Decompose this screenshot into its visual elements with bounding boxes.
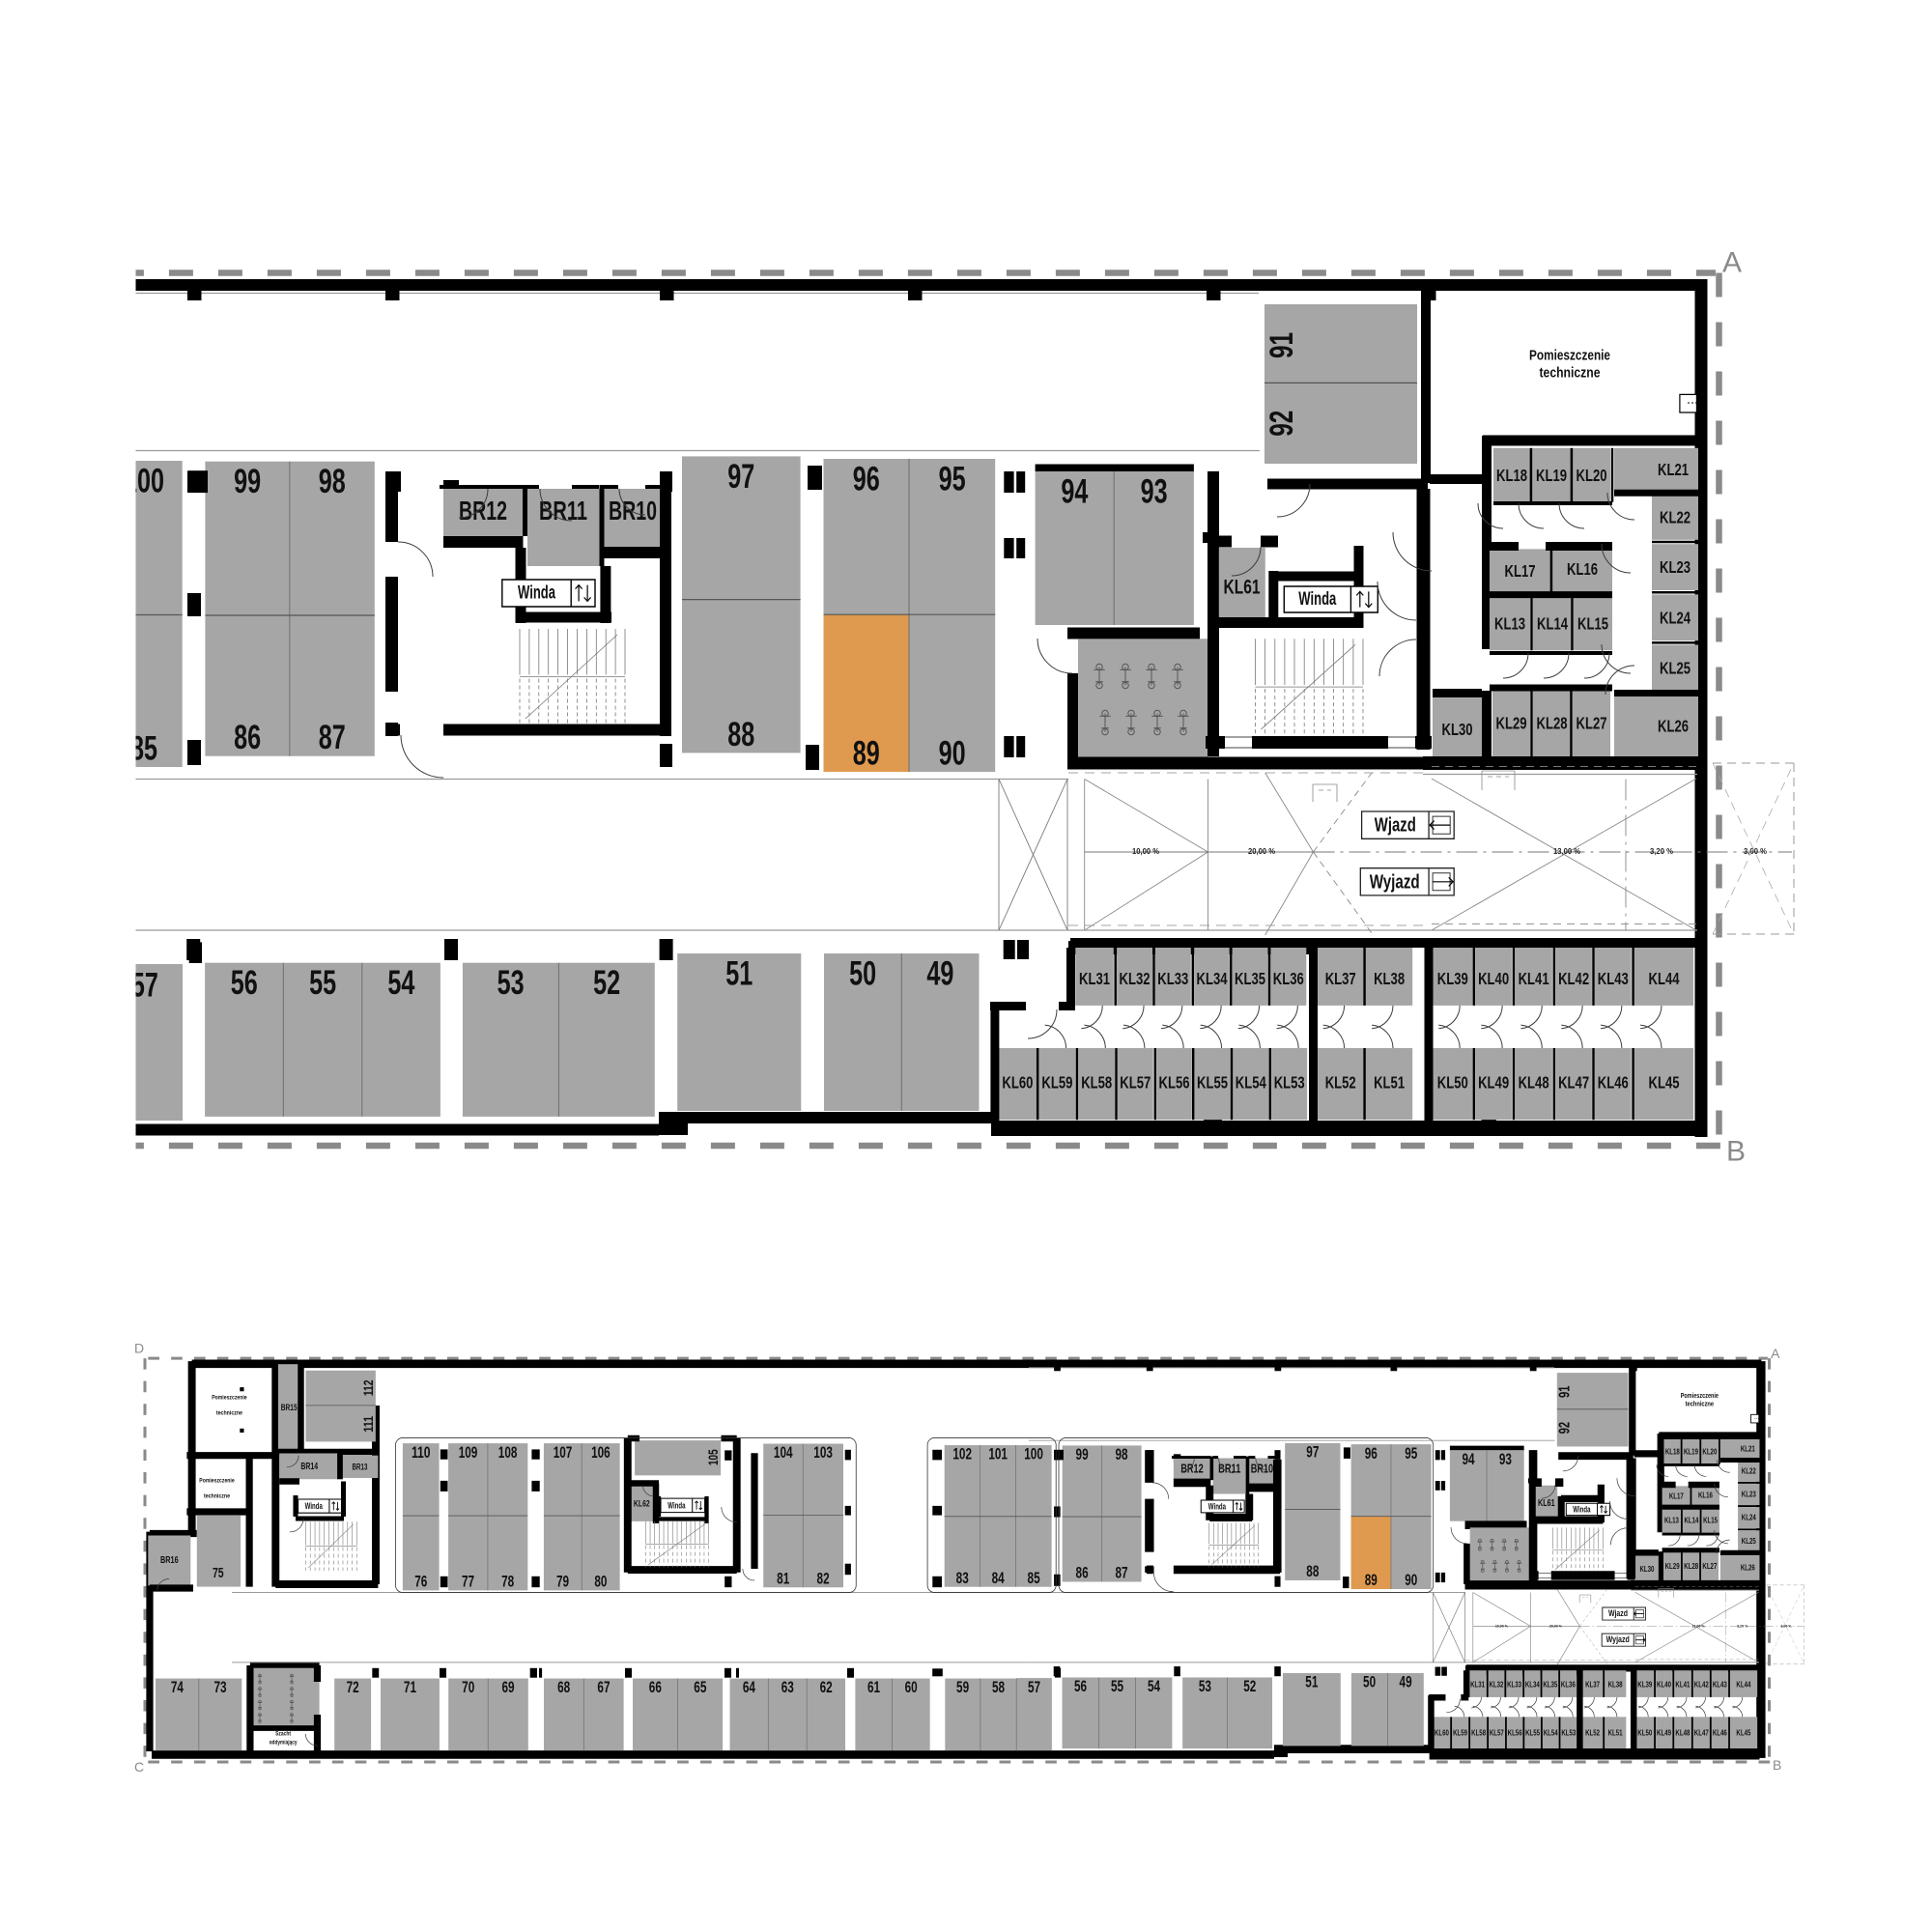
svg-text:83: 83	[956, 1570, 969, 1587]
svg-text:80: 80	[594, 1574, 607, 1591]
svg-text:oddymiający: oddymiający	[270, 1741, 298, 1747]
svg-text:Wjazd: Wjazd	[1375, 814, 1416, 837]
svg-text:100: 100	[1024, 1446, 1043, 1463]
svg-text:56: 56	[1074, 1678, 1087, 1695]
svg-text:107: 107	[554, 1444, 573, 1462]
svg-text:KL62: KL62	[634, 1498, 650, 1508]
svg-text:KL31: KL31	[1470, 1681, 1485, 1690]
svg-text:techniczne: techniczne	[1540, 365, 1601, 382]
svg-text:89: 89	[853, 735, 880, 773]
svg-text:KL27: KL27	[1702, 1562, 1717, 1571]
svg-text:KL56: KL56	[1159, 1073, 1190, 1093]
svg-text:techniczne: techniczne	[204, 1492, 230, 1499]
svg-text:62: 62	[820, 1679, 833, 1696]
svg-text:20,00 %: 20,00 %	[1549, 1623, 1563, 1628]
svg-text:101: 101	[988, 1446, 1008, 1463]
svg-text:49: 49	[1400, 1674, 1412, 1691]
svg-text:KL53: KL53	[1274, 1073, 1305, 1093]
svg-text:105: 105	[705, 1449, 721, 1465]
svg-text:111: 111	[360, 1416, 376, 1433]
svg-text:81: 81	[777, 1571, 789, 1588]
svg-text:53: 53	[1199, 1678, 1211, 1695]
svg-text:Wyjazd: Wyjazd	[1370, 870, 1420, 893]
svg-text:KL61: KL61	[1538, 1498, 1555, 1509]
svg-text:KL40: KL40	[1657, 1681, 1671, 1690]
svg-text:KL49: KL49	[1657, 1728, 1671, 1737]
svg-text:KL59: KL59	[1453, 1728, 1467, 1737]
svg-text:57: 57	[1028, 1679, 1040, 1696]
svg-text:88: 88	[727, 716, 754, 753]
svg-text:KL46: KL46	[1598, 1073, 1629, 1093]
svg-text:KL53: KL53	[1561, 1728, 1576, 1737]
svg-text:KL27: KL27	[1577, 713, 1607, 732]
svg-text:74: 74	[171, 1679, 184, 1696]
svg-text:KL19: KL19	[1536, 466, 1567, 485]
svg-text:KL44: KL44	[1649, 969, 1680, 988]
svg-text:KL60: KL60	[1435, 1728, 1449, 1737]
svg-text:Pomieszczenie: Pomieszczenie	[212, 1394, 247, 1401]
svg-text:Wyjazd: Wyjazd	[1606, 1634, 1630, 1645]
svg-text:KL45: KL45	[1736, 1728, 1750, 1737]
svg-text:69: 69	[501, 1679, 514, 1696]
svg-text:10,00 %: 10,00 %	[1495, 1623, 1509, 1628]
svg-text:KL24: KL24	[1742, 1514, 1756, 1522]
svg-text:BR12: BR12	[459, 496, 507, 526]
svg-text:KL17: KL17	[1505, 561, 1536, 581]
svg-text:108: 108	[498, 1444, 518, 1462]
svg-text:KL19: KL19	[1684, 1447, 1698, 1456]
svg-text:55: 55	[1111, 1678, 1123, 1695]
svg-text:BR10: BR10	[1251, 1461, 1273, 1475]
svg-text:KL60: KL60	[1002, 1073, 1033, 1093]
svg-text:112: 112	[360, 1379, 376, 1396]
svg-text:63: 63	[781, 1679, 794, 1696]
svg-text:95: 95	[1405, 1445, 1417, 1463]
svg-text:D: D	[134, 1340, 144, 1355]
svg-text:92: 92	[1264, 411, 1300, 437]
svg-text:KL13: KL13	[1664, 1516, 1679, 1524]
svg-text:51: 51	[1305, 1674, 1318, 1691]
svg-text:KL30: KL30	[1442, 720, 1473, 739]
svg-text:KL24: KL24	[1660, 608, 1690, 627]
svg-text:110: 110	[412, 1444, 431, 1462]
svg-text:99: 99	[1076, 1446, 1089, 1463]
svg-text:KL47: KL47	[1694, 1728, 1709, 1737]
svg-text:KL33: KL33	[1507, 1681, 1521, 1690]
svg-text:C: C	[134, 1759, 144, 1775]
svg-text:KL17: KL17	[1669, 1492, 1684, 1500]
svg-text:BR11: BR11	[539, 496, 587, 526]
svg-text:64: 64	[743, 1679, 755, 1696]
svg-text:50: 50	[1363, 1674, 1376, 1691]
svg-text:55: 55	[309, 964, 336, 1002]
svg-text:Pomieszczenie: Pomieszczenie	[1529, 348, 1610, 364]
svg-text:KL50: KL50	[1637, 1728, 1652, 1737]
svg-text:78: 78	[501, 1574, 514, 1591]
svg-text:95: 95	[939, 461, 966, 498]
svg-text:88: 88	[1306, 1563, 1319, 1580]
svg-text:KL43: KL43	[1598, 969, 1629, 988]
svg-text:86: 86	[234, 719, 261, 756]
svg-text:97: 97	[1306, 1444, 1319, 1462]
svg-text:72: 72	[347, 1679, 359, 1696]
svg-text:KL49: KL49	[1478, 1073, 1509, 1093]
svg-text:KL20: KL20	[1702, 1447, 1717, 1456]
svg-text:KL21: KL21	[1658, 460, 1689, 479]
svg-text:Winda: Winda	[1208, 1501, 1226, 1511]
svg-text:50: 50	[849, 955, 876, 993]
svg-text:92: 92	[1557, 1422, 1574, 1435]
svg-text:KL22: KL22	[1660, 508, 1690, 527]
svg-text:KL45: KL45	[1649, 1073, 1680, 1093]
svg-text:B: B	[1726, 1136, 1746, 1168]
svg-text:KL14: KL14	[1684, 1516, 1698, 1524]
svg-text:KL38: KL38	[1374, 969, 1405, 988]
svg-text:KL35: KL35	[1543, 1681, 1557, 1690]
svg-text:KL18: KL18	[1496, 466, 1527, 485]
svg-text:79: 79	[556, 1574, 569, 1591]
svg-text:Winda: Winda	[305, 1501, 323, 1511]
svg-text:Pomieszczenie: Pomieszczenie	[199, 1478, 235, 1485]
svg-text:KL54: KL54	[1236, 1073, 1266, 1093]
svg-text:84: 84	[992, 1570, 1005, 1587]
svg-text:Winda: Winda	[518, 583, 555, 604]
svg-text:99: 99	[234, 463, 261, 500]
svg-text:85: 85	[1028, 1570, 1040, 1587]
svg-text:54: 54	[1148, 1678, 1160, 1695]
svg-text:51: 51	[725, 955, 753, 993]
svg-text:KL29: KL29	[1665, 1562, 1680, 1571]
svg-text:109: 109	[459, 1444, 478, 1462]
svg-text:KL15: KL15	[1577, 613, 1608, 633]
svg-text:KL55: KL55	[1197, 1073, 1228, 1093]
svg-text:KL55: KL55	[1525, 1728, 1540, 1737]
svg-text:87: 87	[1116, 1565, 1128, 1582]
svg-text:KL34: KL34	[1197, 969, 1228, 988]
svg-text:KL52: KL52	[1585, 1728, 1600, 1737]
svg-text:52: 52	[1243, 1678, 1256, 1695]
svg-text:76: 76	[414, 1574, 427, 1591]
svg-text:Winda: Winda	[1573, 1504, 1590, 1514]
svg-text:KL39: KL39	[1637, 1681, 1652, 1690]
svg-text:KL46: KL46	[1713, 1728, 1727, 1737]
svg-text:KL57: KL57	[1490, 1728, 1504, 1737]
svg-text:BR16: BR16	[160, 1555, 179, 1566]
svg-text:49: 49	[926, 955, 953, 993]
svg-text:BR15: BR15	[281, 1403, 298, 1412]
svg-text:103: 103	[813, 1444, 833, 1462]
svg-text:66: 66	[649, 1679, 662, 1696]
svg-text:53: 53	[497, 964, 525, 1002]
svg-text:Szacht: Szacht	[275, 1732, 291, 1738]
svg-text:KL44: KL44	[1736, 1681, 1750, 1690]
svg-text:10,00 %: 10,00 %	[1132, 846, 1159, 856]
svg-text:96: 96	[1365, 1445, 1378, 1463]
svg-text:KL52: KL52	[1325, 1073, 1356, 1093]
svg-text:A: A	[1722, 247, 1742, 279]
svg-text:86: 86	[1076, 1565, 1089, 1582]
svg-text:3,00 %: 3,00 %	[1780, 1623, 1792, 1628]
svg-text:104: 104	[774, 1444, 793, 1462]
svg-text:KL38: KL38	[1608, 1681, 1623, 1690]
svg-text:A: A	[1771, 1346, 1780, 1361]
svg-text:102: 102	[952, 1446, 972, 1463]
svg-text:KL29: KL29	[1496, 713, 1527, 732]
svg-text:Winda: Winda	[1298, 589, 1336, 610]
svg-text:KL58: KL58	[1081, 1073, 1112, 1093]
svg-text:13,00 %: 13,00 %	[1553, 846, 1580, 856]
svg-text:82: 82	[817, 1571, 830, 1588]
svg-text:59: 59	[956, 1679, 969, 1696]
svg-text:77: 77	[462, 1574, 474, 1591]
svg-text:KL41: KL41	[1519, 969, 1549, 988]
svg-text:54: 54	[387, 964, 414, 1002]
svg-text:KL22: KL22	[1742, 1467, 1756, 1476]
svg-text:89: 89	[1365, 1572, 1378, 1589]
svg-text:91: 91	[1557, 1385, 1574, 1398]
svg-text:KL35: KL35	[1235, 969, 1265, 988]
svg-text:KL26: KL26	[1658, 717, 1689, 736]
svg-text:56: 56	[231, 964, 258, 1002]
svg-text:BR11: BR11	[1218, 1461, 1240, 1475]
svg-text:13,00 %: 13,00 %	[1691, 1623, 1705, 1628]
svg-text:Wjazd: Wjazd	[1608, 1608, 1628, 1619]
svg-text:52: 52	[593, 964, 620, 1002]
svg-text:KL20: KL20	[1577, 466, 1607, 485]
svg-text:58: 58	[992, 1679, 1005, 1696]
svg-text:Winda: Winda	[668, 1500, 685, 1510]
svg-text:KL61: KL61	[1224, 577, 1261, 599]
svg-text:KL36: KL36	[1561, 1681, 1576, 1690]
svg-text:68: 68	[557, 1679, 570, 1696]
svg-text:KL23: KL23	[1742, 1491, 1756, 1499]
svg-text:60: 60	[905, 1679, 918, 1696]
svg-text:KL15: KL15	[1703, 1516, 1718, 1524]
svg-text:90: 90	[1405, 1572, 1417, 1589]
svg-text:61: 61	[867, 1679, 880, 1696]
svg-text:KL56: KL56	[1508, 1728, 1522, 1737]
svg-text:94: 94	[1462, 1451, 1474, 1468]
svg-text:KL25: KL25	[1742, 1537, 1756, 1546]
svg-text:techniczne: techniczne	[1686, 1401, 1715, 1407]
svg-text:KL39: KL39	[1437, 969, 1468, 988]
svg-text:KL54: KL54	[1544, 1728, 1558, 1737]
svg-text:KL31: KL31	[1079, 969, 1110, 988]
svg-text:KL26: KL26	[1741, 1564, 1755, 1573]
svg-text:KL32: KL32	[1490, 1681, 1504, 1690]
svg-text:106: 106	[591, 1444, 611, 1462]
svg-text:90: 90	[939, 735, 966, 773]
svg-text:71: 71	[404, 1679, 416, 1696]
svg-text:73: 73	[213, 1679, 226, 1696]
svg-text:96: 96	[853, 461, 880, 498]
svg-text:93: 93	[1499, 1451, 1512, 1468]
svg-text:BR14: BR14	[300, 1462, 318, 1472]
svg-text:BR13: BR13	[353, 1462, 368, 1471]
svg-text:75: 75	[213, 1566, 224, 1581]
svg-text:KL25: KL25	[1660, 659, 1690, 678]
svg-text:KL37: KL37	[1325, 969, 1356, 988]
svg-text:KL42: KL42	[1694, 1681, 1709, 1690]
svg-text:KL28: KL28	[1684, 1562, 1698, 1571]
svg-text:91: 91	[1264, 332, 1300, 358]
svg-text:KL13: KL13	[1494, 613, 1525, 633]
svg-text:KL57: KL57	[1120, 1073, 1151, 1093]
svg-text:KL58: KL58	[1471, 1728, 1486, 1737]
svg-text:20,00 %: 20,00 %	[1248, 846, 1275, 856]
svg-text:KL50: KL50	[1437, 1073, 1468, 1093]
svg-text:KL37: KL37	[1585, 1681, 1600, 1690]
svg-text:KL48: KL48	[1675, 1728, 1690, 1737]
svg-text:KL32: KL32	[1120, 969, 1151, 988]
svg-text:KL30: KL30	[1639, 1565, 1654, 1574]
svg-text:KL16: KL16	[1567, 559, 1598, 579]
svg-text:BR10: BR10	[609, 496, 657, 526]
svg-text:Pomieszczenie: Pomieszczenie	[1681, 1393, 1719, 1400]
svg-text:KL41: KL41	[1675, 1681, 1690, 1690]
svg-text:techniczne: techniczne	[216, 1410, 242, 1417]
svg-text:B: B	[1773, 1757, 1781, 1773]
svg-text:KL43: KL43	[1713, 1681, 1727, 1690]
svg-text:KL23: KL23	[1660, 557, 1690, 577]
svg-text:BR12: BR12	[1180, 1461, 1203, 1475]
svg-text:97: 97	[727, 458, 754, 496]
svg-text:98: 98	[319, 463, 346, 500]
svg-text:94: 94	[1061, 473, 1088, 511]
svg-text:3,20 %: 3,20 %	[1650, 846, 1673, 856]
svg-text:KL51: KL51	[1374, 1073, 1405, 1093]
svg-text:KL36: KL36	[1273, 969, 1304, 988]
svg-text:KL28: KL28	[1537, 713, 1568, 732]
svg-text:70: 70	[462, 1679, 474, 1696]
svg-text:3,00 %: 3,00 %	[1744, 846, 1767, 856]
svg-text:KL40: KL40	[1478, 969, 1509, 988]
svg-text:KL48: KL48	[1519, 1073, 1549, 1093]
svg-text:93: 93	[1141, 473, 1168, 511]
svg-text:65: 65	[694, 1679, 706, 1696]
svg-text:67: 67	[597, 1679, 610, 1696]
svg-text:KL18: KL18	[1665, 1447, 1680, 1456]
svg-text:KL14: KL14	[1537, 613, 1568, 633]
svg-text:KL21: KL21	[1741, 1445, 1755, 1454]
svg-text:KL34: KL34	[1525, 1681, 1540, 1690]
svg-text:KL47: KL47	[1558, 1073, 1589, 1093]
svg-text:KL59: KL59	[1041, 1073, 1072, 1093]
svg-text:KL51: KL51	[1608, 1728, 1623, 1737]
svg-text:KL16: KL16	[1698, 1491, 1713, 1499]
svg-text:87: 87	[319, 719, 346, 756]
svg-text:KL42: KL42	[1558, 969, 1589, 988]
svg-text:KL33: KL33	[1157, 969, 1188, 988]
svg-text:98: 98	[1116, 1446, 1128, 1463]
svg-text:3,20 %: 3,20 %	[1737, 1623, 1748, 1628]
